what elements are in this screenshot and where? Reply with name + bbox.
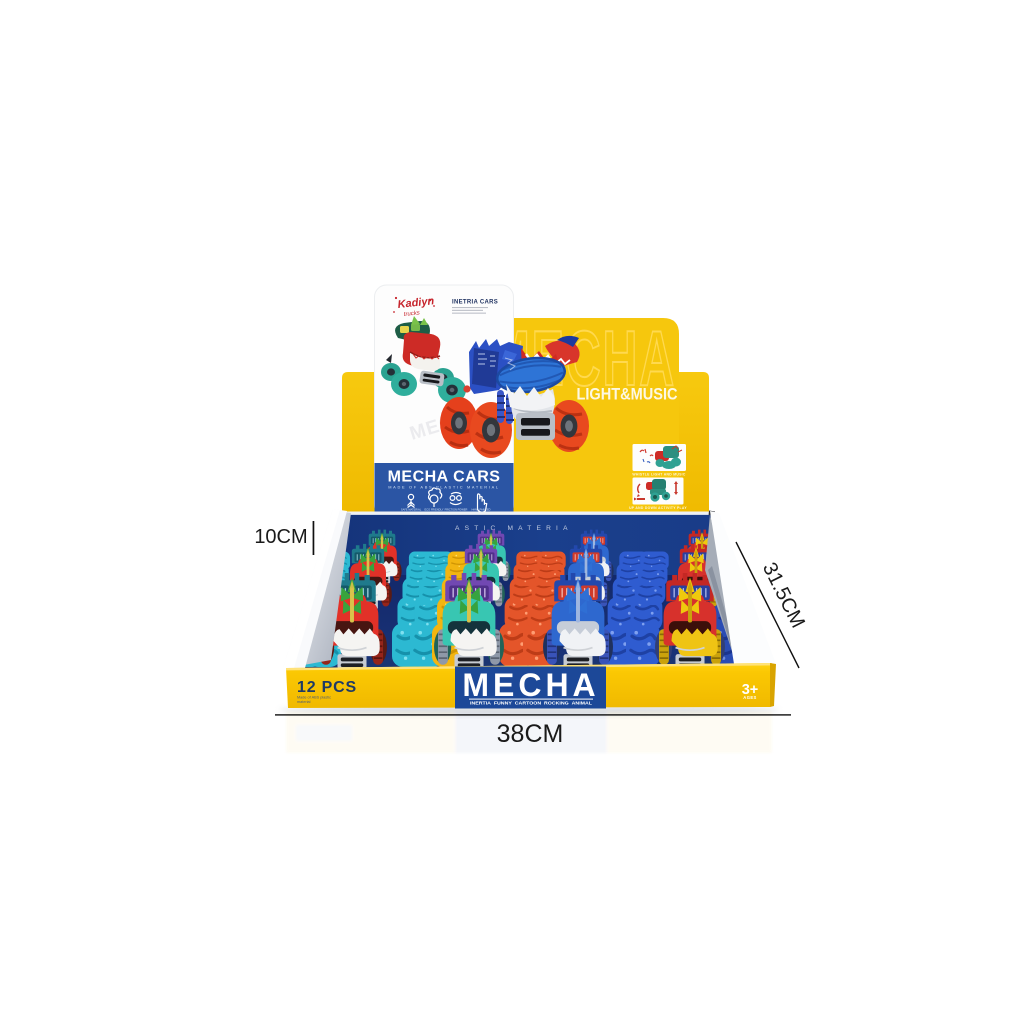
svg-text:HAND PAINTED: HAND PAINTED: [471, 508, 490, 512]
svg-text:12 PCS: 12 PCS: [297, 679, 357, 696]
svg-text:MECHA: MECHA: [462, 667, 599, 703]
svg-text:38CM: 38CM: [497, 720, 564, 748]
svg-text:MECHA CARS: MECHA CARS: [388, 469, 501, 486]
svg-text:material: material: [297, 700, 311, 704]
svg-text:INETRIA CARS: INETRIA CARS: [452, 300, 498, 306]
svg-text:INERTIA FUNNY CARTOON ROCKI: INERTIA FUNNY CARTOON ROCKING ANIMAL: [470, 701, 592, 706]
svg-text:WHISTLE LIGHT AND MUSIC: WHISTLE LIGHT AND MUSIC: [632, 473, 686, 477]
svg-text:ECO FRIENDLY: ECO FRIENDLY: [425, 508, 444, 512]
svg-text:SAFE MATERIAL: SAFE MATERIAL: [401, 508, 422, 512]
svg-text:10CM: 10CM: [254, 526, 307, 548]
svg-text:ASTIC MATERIA: ASTIC MATERIA: [455, 525, 573, 532]
svg-text:UP AND DOWN ACTIVITY PLAY: UP AND DOWN ACTIVITY PLAY: [629, 506, 687, 510]
svg-text:FRICTION POWER: FRICTION POWER: [445, 508, 468, 512]
svg-text:MADE OF ABS PLASTIC MATERIAL: MADE OF ABS PLASTIC MATERIAL: [388, 485, 500, 490]
svg-text:AGES: AGES: [743, 695, 756, 700]
svg-text:LIGHT&MUSIC: LIGHT&MUSIC: [577, 386, 678, 404]
